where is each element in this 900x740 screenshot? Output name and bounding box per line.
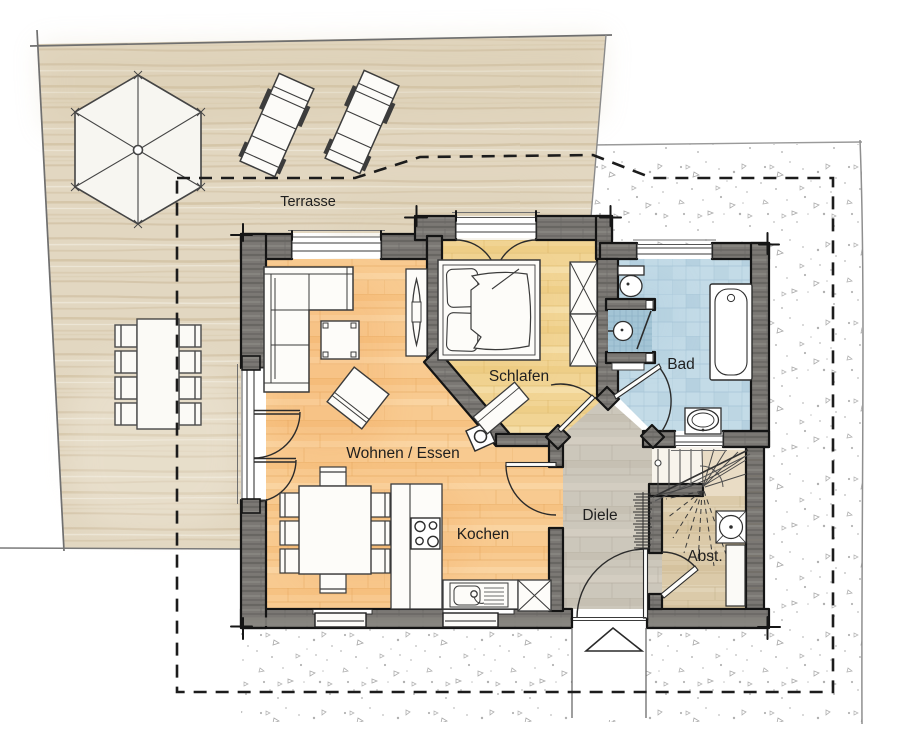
svg-text:Wohnen / Essen: Wohnen / Essen [346,445,459,462]
svg-text:Schlafen: Schlafen [489,368,549,385]
svg-text:Terrasse: Terrasse [280,194,336,210]
svg-text:Bad: Bad [667,356,695,373]
svg-text:Kochen: Kochen [457,526,510,543]
svg-text:Diele: Diele [582,507,617,524]
svg-text:Abst.: Abst. [687,548,722,565]
